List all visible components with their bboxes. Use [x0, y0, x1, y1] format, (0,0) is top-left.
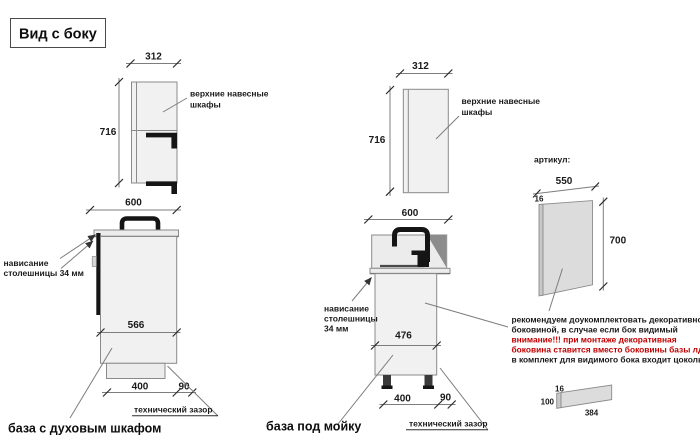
plinth-dim-16: 16 — [555, 385, 564, 394]
overhang-label-1: нависание — [324, 304, 369, 314]
tech-gap-label: технический зазор — [409, 419, 488, 429]
panel-edge-face — [539, 204, 543, 296]
faucet-lever — [412, 251, 428, 256]
upper-cabinet-label-1: верхние навесные — [190, 89, 269, 99]
bottom-rail-bracket — [146, 181, 177, 194]
overhang-label-3: 34 мм — [324, 324, 348, 334]
dim-550: 550 — [556, 176, 573, 187]
overhang-label-2: столешницы — [324, 314, 378, 324]
leg-front — [383, 375, 391, 386]
dim-476: 476 — [395, 331, 412, 342]
base-cabinet-side — [375, 274, 437, 375]
dim-400: 400 — [394, 394, 411, 405]
upper-cabinet-label-1: верхние навесные — [462, 96, 541, 106]
leg-back — [425, 375, 433, 386]
article-heading: артикул: — [534, 155, 570, 165]
plinth-main-face — [561, 385, 612, 408]
dim-line-550 — [533, 186, 599, 194]
oven-door-handle-tab — [92, 257, 96, 267]
sink-base-caption: база под мойку — [266, 420, 361, 434]
note-line-2: боковиной, в случае если бок видимый — [512, 325, 678, 335]
mid-upper-cabinet: 312 716 верхние навесные шкафы — [369, 61, 541, 196]
plinth-dim-100: 100 — [541, 398, 555, 407]
leg-back-foot — [423, 386, 434, 390]
dim-716: 716 — [369, 135, 386, 146]
note-line-1: рекомендуем доукомплектовать декоративно… — [512, 315, 700, 325]
title-box: Вид с боку — [11, 19, 106, 48]
oven-base-caption: база с духовым шкафом — [8, 422, 161, 436]
base-cabinet-side — [101, 237, 177, 364]
sink-base-cabinet: 600 476 400 90 технический зазор нависан… — [266, 208, 508, 434]
plinth-dim-384: 384 — [585, 409, 599, 418]
warning-line-1: внимание!!! при монтаже декоративная — [512, 335, 677, 345]
wall-cabinet-side — [132, 82, 178, 183]
dim-90: 90 — [440, 393, 452, 404]
side-view-drawing: Вид с боку 312 716 верхние навесные шкаф… — [0, 0, 700, 438]
tech-gap-label: технический зазор — [134, 405, 213, 415]
oven-base-cabinet: 600 566 400 90 технический зазор нависан… — [4, 198, 219, 436]
caption-leader — [70, 348, 112, 418]
warning-line-2: боковина ставится вместо боковины базы л… — [512, 345, 700, 355]
overhang-arrow-1 — [60, 235, 96, 259]
left-upper-cabinet: 312 716 верхние навесные шкафы — [100, 52, 269, 195]
plinth-edge-face — [557, 393, 561, 409]
dim-16: 16 — [535, 195, 544, 204]
note-line-3: в комплект для видимого бока входит цоко… — [512, 355, 700, 365]
faucet-body — [418, 255, 430, 267]
panel-main-face — [543, 201, 593, 296]
leg-front-foot — [382, 386, 393, 390]
plinth — [107, 363, 166, 378]
oven-door-edge — [96, 233, 100, 315]
countertop — [370, 268, 450, 273]
overhang-arrow — [352, 278, 372, 302]
caption-leader — [338, 355, 393, 424]
dim-700: 700 — [610, 236, 627, 247]
dim-600: 600 — [402, 208, 419, 219]
upper-cabinet-label-2: шкафы — [462, 107, 493, 117]
dim-312: 312 — [412, 61, 429, 72]
dim-566: 566 — [128, 320, 145, 331]
dim-400: 400 — [132, 382, 149, 393]
overhang-label-1: нависание — [4, 258, 49, 268]
upper-cabinet-label-2: шкафы — [190, 100, 221, 110]
wall-cabinet-side — [403, 89, 448, 192]
plinth-panel: 16 100 384 — [541, 385, 612, 418]
countertop — [94, 230, 179, 237]
side-panel-leader — [425, 303, 508, 327]
drawing-canvas: Вид с боку 312 716 верхние навесные шкаф… — [0, 0, 700, 438]
oven-handle-icon — [122, 219, 158, 231]
dim-312: 312 — [145, 52, 162, 63]
decorative-side-panel: артикул: 550 16 700 рекомендуем доукомпл… — [512, 155, 700, 365]
dim-600: 600 — [125, 198, 142, 209]
dim-716: 716 — [100, 127, 117, 138]
page-title: Вид с боку — [19, 27, 97, 43]
overhang-label-2: столешницы 34 мм — [4, 268, 84, 278]
